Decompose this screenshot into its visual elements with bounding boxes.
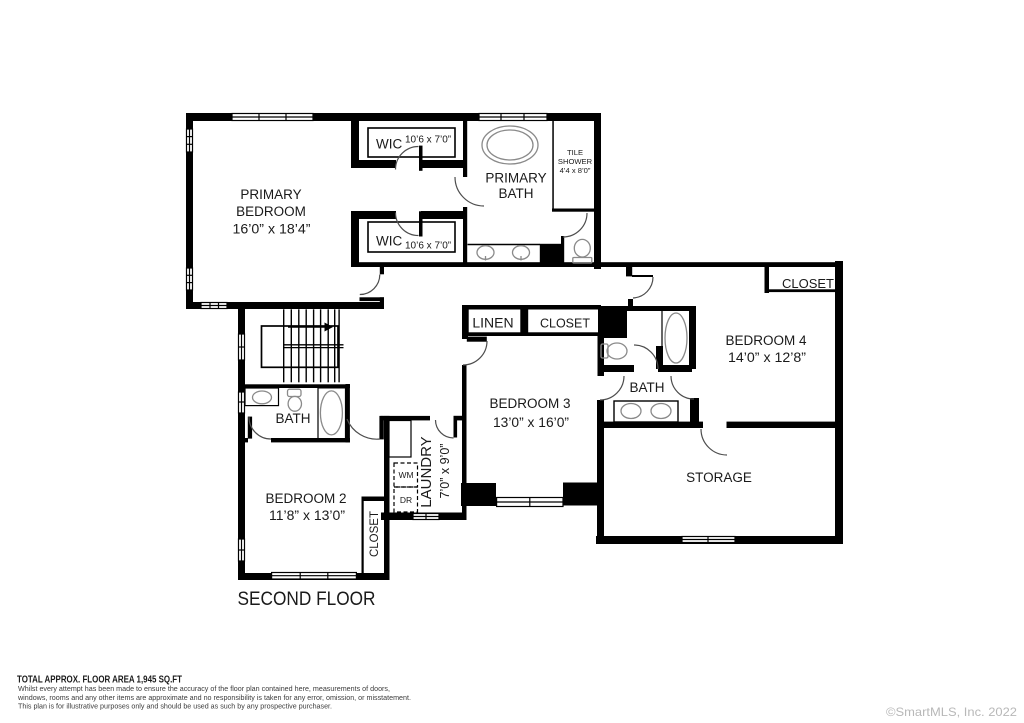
svg-text:BATH: BATH (498, 186, 533, 201)
svg-text:STORAGE: STORAGE (686, 470, 752, 485)
svg-text:TILE: TILE (567, 148, 583, 157)
svg-text:CLOSET: CLOSET (782, 276, 834, 291)
svg-text:13’0” x 16’0”: 13’0” x 16’0” (493, 415, 569, 430)
svg-text:4’4 x 8’0”: 4’4 x 8’0” (560, 166, 591, 175)
svg-text:WIC: WIC (376, 137, 402, 152)
svg-text:7’0” x 9’0”: 7’0” x 9’0” (438, 444, 452, 499)
svg-text:BATH: BATH (629, 380, 664, 395)
svg-text:CLOSET: CLOSET (369, 511, 381, 557)
svg-text:SECOND FLOOR: SECOND FLOOR (238, 589, 376, 610)
svg-text:WIC: WIC (376, 234, 402, 249)
svg-text:BEDROOM: BEDROOM (236, 204, 306, 219)
svg-text:©SmartMLS, Inc. 2022: ©SmartMLS, Inc. 2022 (886, 705, 1017, 719)
svg-text:DR: DR (400, 495, 412, 505)
svg-text:LINEN: LINEN (472, 315, 513, 331)
svg-text:14’0” x 12’8”: 14’0” x 12’8” (728, 350, 806, 365)
svg-text:CLOSET: CLOSET (540, 317, 590, 331)
svg-text:10’6 x 7’0”: 10’6 x 7’0” (405, 241, 451, 252)
svg-text:This plan is for illustrative: This plan is for illustrative purposes o… (18, 702, 332, 711)
svg-text:PRIMARY: PRIMARY (240, 187, 301, 202)
svg-text:BEDROOM 3: BEDROOM 3 (489, 396, 570, 411)
svg-text:BATH: BATH (275, 411, 310, 426)
svg-text:11’8” x 13’0”: 11’8” x 13’0” (269, 508, 345, 523)
svg-text:SHOWER: SHOWER (558, 157, 593, 166)
svg-text:16’0” x 18’4”: 16’0” x 18’4” (233, 221, 311, 236)
svg-text:BEDROOM 2: BEDROOM 2 (265, 491, 346, 506)
svg-text:BEDROOM 4: BEDROOM 4 (725, 333, 807, 348)
svg-text:WM: WM (398, 470, 413, 480)
svg-text:Whilst every attempt has been: Whilst every attempt has been made to en… (18, 684, 390, 693)
svg-text:10’6 x 7’0”: 10’6 x 7’0” (405, 135, 451, 146)
svg-text:PRIMARY: PRIMARY (485, 171, 546, 186)
svg-text:LAUNDRY: LAUNDRY (418, 436, 435, 507)
